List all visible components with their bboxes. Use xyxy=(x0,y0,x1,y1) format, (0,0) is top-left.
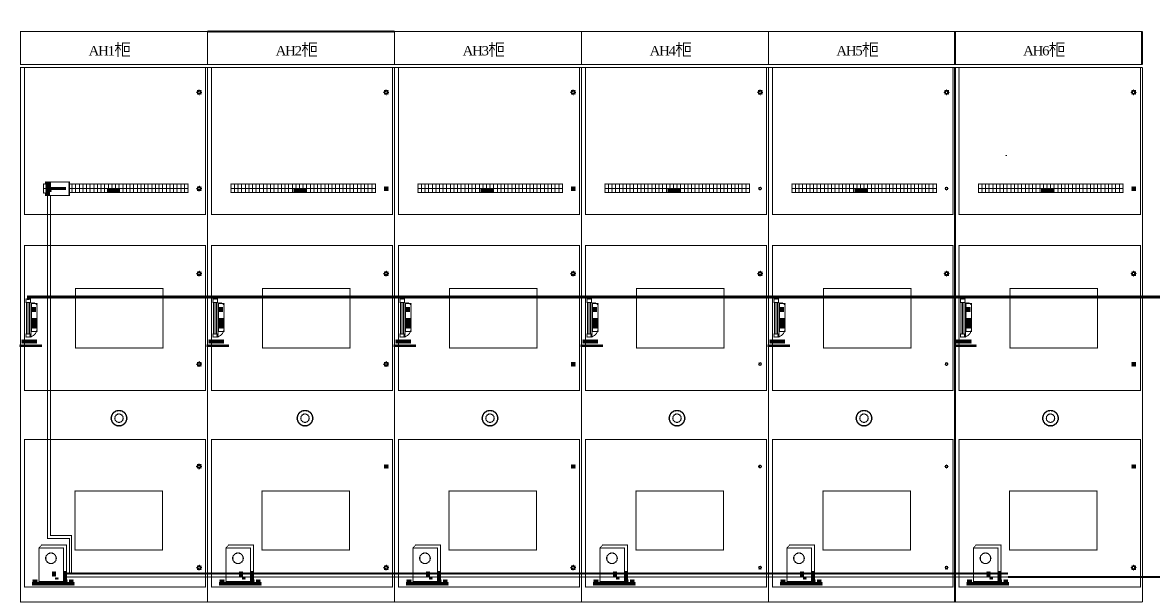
svg-text:AH5: AH5 xyxy=(836,44,862,60)
svg-text:AH1: AH1 xyxy=(89,44,115,60)
svg-text:AH6: AH6 xyxy=(1023,44,1049,60)
svg-text:AH4: AH4 xyxy=(650,44,677,60)
svg-text:AH3: AH3 xyxy=(463,44,489,60)
svg-text:AH2: AH2 xyxy=(276,44,302,60)
